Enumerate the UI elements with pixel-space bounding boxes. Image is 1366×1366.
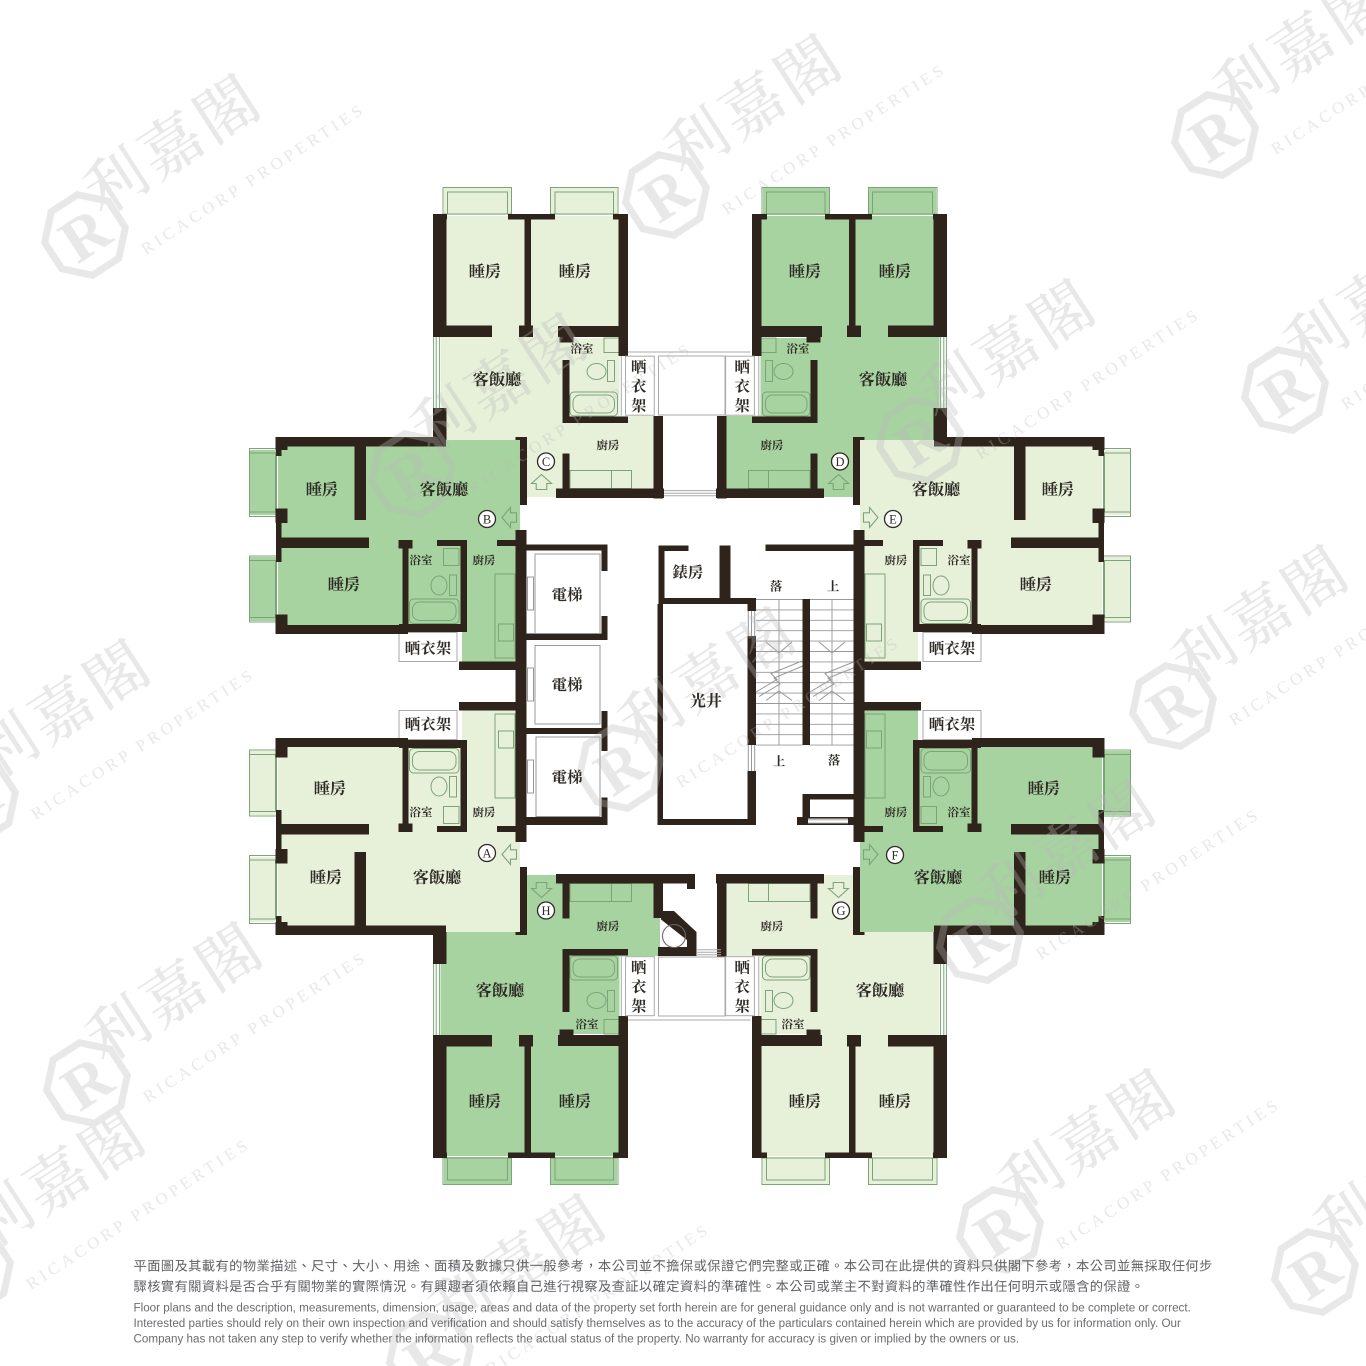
svg-text:H: H — [541, 904, 550, 918]
svg-text:D: D — [835, 455, 844, 469]
svg-text:F: F — [892, 848, 899, 862]
svg-text:Floor plans and the descriptio: Floor plans and the description, measure… — [134, 1302, 1191, 1315]
svg-text:A: A — [482, 846, 491, 860]
svg-text:E: E — [889, 512, 897, 526]
svg-text:B: B — [483, 512, 491, 526]
svg-text:G: G — [836, 904, 845, 918]
svg-text:Interested parties should rely: Interested parties should rely on their … — [134, 1317, 1181, 1330]
svg-text:Company has not taken any step: Company has not taken any step to verify… — [134, 1333, 1020, 1346]
svg-text:C: C — [542, 455, 550, 469]
